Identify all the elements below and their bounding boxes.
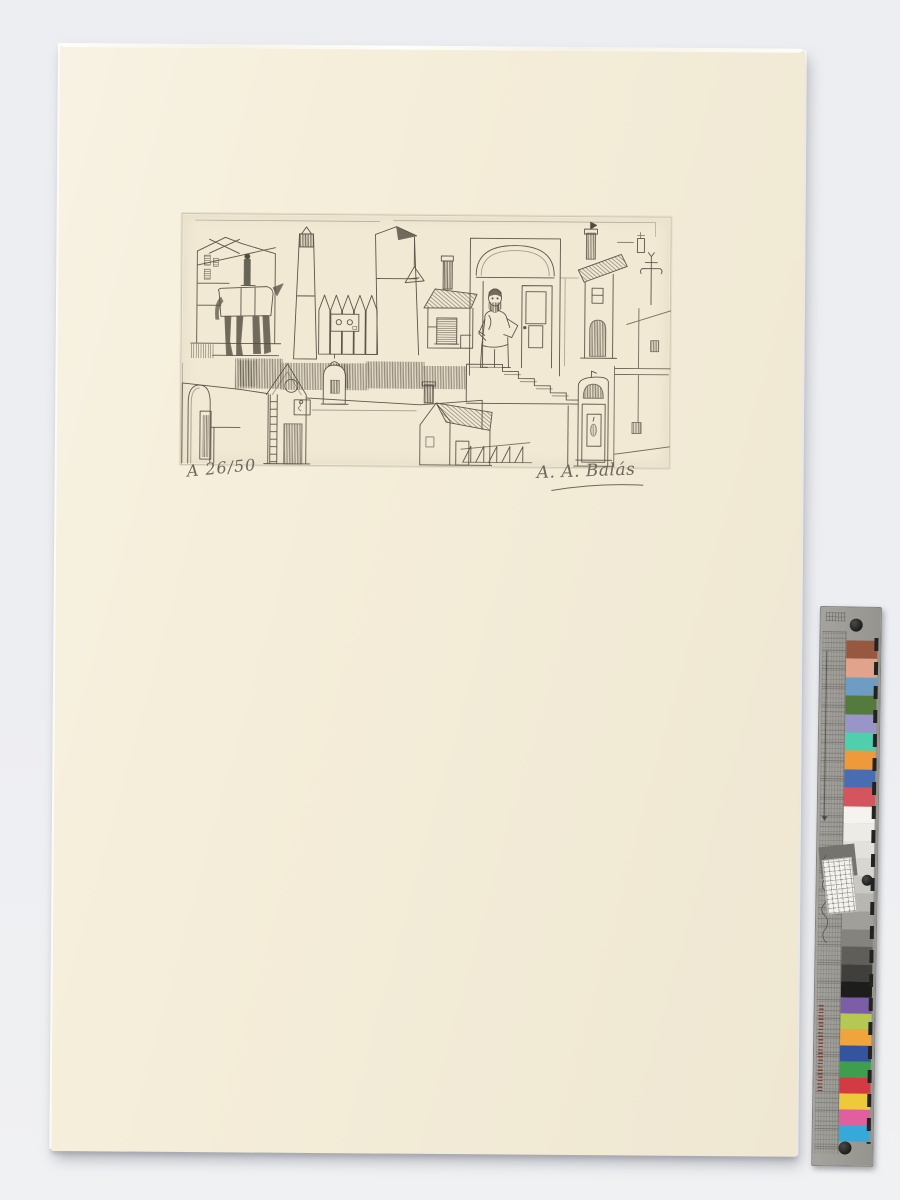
calibration-dot-bottom [838,1141,851,1154]
color-patch [840,1062,871,1078]
color-patch [846,640,877,659]
obelisk-tower [294,227,318,359]
right-doorway [568,371,615,466]
right-wall [614,232,672,466]
grayscale-patch [844,806,875,824]
hatch-band [234,358,466,391]
color-patch [839,1126,870,1142]
color-patch [845,732,876,751]
color-patch [844,751,875,770]
right-tower [559,222,627,367]
etching-artwork [180,213,672,469]
center-house [424,256,478,348]
photograph-background: A 26/50 A. A. Balás [0,0,900,1200]
color-patch [840,1014,871,1030]
stairs [466,364,578,404]
horse-figure [213,254,284,356]
grayscale-patch [842,911,873,929]
clock-tower [240,363,311,464]
color-patch [839,1110,870,1126]
lower-left-wall [182,383,241,463]
color-patch [841,982,872,998]
middle-wall [306,398,482,429]
color-patch [845,696,876,715]
second-tower [375,226,425,354]
left-building [191,237,282,359]
color-patch [840,1030,871,1046]
top-border-lines [182,219,656,467]
color-patch [846,659,877,678]
color-patch [839,1078,870,1094]
color-patch [844,769,875,788]
shrine [321,354,348,404]
gable-house [420,382,493,466]
artist-signature: A. A. Balás [536,458,687,483]
grayscale-patch [843,824,874,842]
calibration-dot-top [850,618,863,631]
grayscale-patch [842,929,873,947]
sawtooth-fence [461,442,532,463]
color-patch [841,998,872,1014]
standing-figure [478,289,518,368]
plate-mark [180,213,672,469]
print-sheet: A 26/50 A. A. Balás [51,45,805,1157]
color-patch [844,788,875,807]
color-patch [839,1094,870,1110]
gothic-fence [319,295,378,354]
signature-underline [549,480,645,493]
card-micro-text [826,612,846,621]
grayscale-patch [841,947,872,965]
arched-portal [469,238,560,376]
color-patch [840,1046,871,1062]
color-calibration-strip [811,606,882,1167]
color-patch [845,714,876,733]
color-patch [846,677,877,696]
grayscale-patch [841,964,872,982]
calibration-label-sticker [822,857,858,915]
signature-text: A. A. Balás [536,460,635,484]
deckle-edge [62,43,801,53]
